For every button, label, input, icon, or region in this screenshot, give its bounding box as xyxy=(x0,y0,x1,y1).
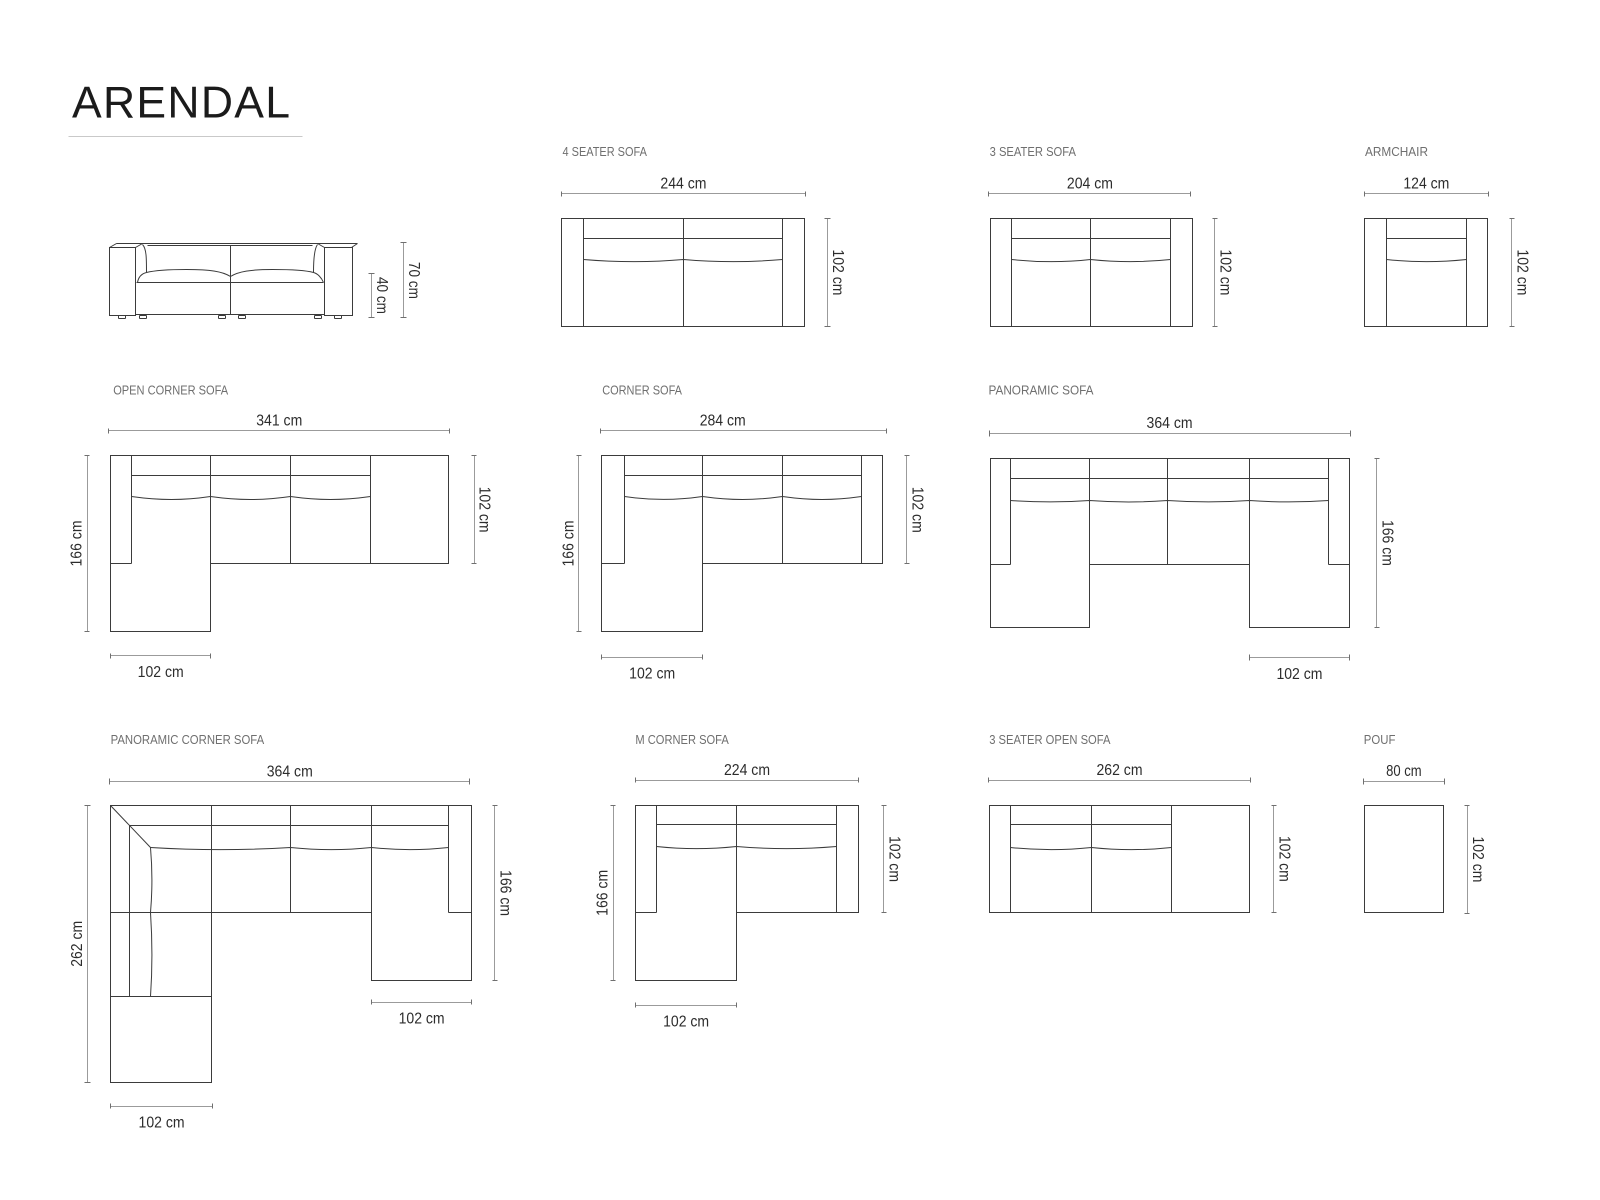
svg-text:70 cm: 70 cm xyxy=(405,262,422,299)
svg-text:166 cm: 166 cm xyxy=(1379,520,1396,566)
svg-text:284 cm: 284 cm xyxy=(700,413,746,430)
svg-text:364 cm: 364 cm xyxy=(1147,415,1193,432)
svg-text:244 cm: 244 cm xyxy=(660,176,706,193)
svg-text:102 cm: 102 cm xyxy=(829,249,846,295)
svg-text:166 cm: 166 cm xyxy=(560,521,577,567)
svg-text:102 cm: 102 cm xyxy=(629,666,675,683)
svg-text:102 cm: 102 cm xyxy=(138,664,184,681)
svg-text:204 cm: 204 cm xyxy=(1067,176,1113,193)
svg-text:OPEN CORNER SOFA: OPEN CORNER SOFA xyxy=(113,382,228,397)
svg-text:4 SEATER SOFA: 4 SEATER SOFA xyxy=(563,144,648,159)
svg-text:ARMCHAIR: ARMCHAIR xyxy=(1365,144,1428,159)
svg-text:166 cm: 166 cm xyxy=(497,870,514,916)
svg-text:3 SEATER SOFA: 3 SEATER SOFA xyxy=(990,144,1077,159)
svg-text:124 cm: 124 cm xyxy=(1403,176,1449,193)
svg-text:40 cm: 40 cm xyxy=(373,277,390,314)
svg-text:262 cm: 262 cm xyxy=(1097,762,1143,779)
svg-text:80 cm: 80 cm xyxy=(1386,763,1422,780)
svg-text:102 cm: 102 cm xyxy=(399,1011,445,1028)
svg-text:3 SEATER OPEN SOFA: 3 SEATER OPEN SOFA xyxy=(989,732,1111,747)
svg-text:341 cm: 341 cm xyxy=(256,412,302,429)
svg-text:102 cm: 102 cm xyxy=(476,487,493,533)
svg-text:102 cm: 102 cm xyxy=(1217,249,1234,295)
svg-text:102 cm: 102 cm xyxy=(1276,666,1322,683)
svg-text:166 cm: 166 cm xyxy=(69,521,86,567)
svg-text:ARENDAL: ARENDAL xyxy=(72,78,290,127)
svg-text:102 cm: 102 cm xyxy=(139,1115,185,1132)
svg-text:262 cm: 262 cm xyxy=(69,921,86,967)
svg-text:POUF: POUF xyxy=(1364,732,1396,747)
svg-text:102 cm: 102 cm xyxy=(1513,249,1530,295)
svg-text:102 cm: 102 cm xyxy=(886,836,903,882)
svg-text:PANORAMIC SOFA: PANORAMIC SOFA xyxy=(989,382,1094,397)
svg-text:102 cm: 102 cm xyxy=(909,487,926,533)
svg-text:102 cm: 102 cm xyxy=(1275,836,1292,882)
svg-text:M CORNER SOFA: M CORNER SOFA xyxy=(635,732,729,747)
svg-text:224 cm: 224 cm xyxy=(724,762,770,779)
svg-text:166 cm: 166 cm xyxy=(595,870,612,916)
svg-text:102 cm: 102 cm xyxy=(1469,836,1486,882)
svg-text:CORNER SOFA: CORNER SOFA xyxy=(602,382,682,397)
svg-text:PANORAMIC CORNER SOFA: PANORAMIC CORNER SOFA xyxy=(111,732,265,747)
svg-text:364 cm: 364 cm xyxy=(267,763,313,780)
svg-text:102 cm: 102 cm xyxy=(663,1013,709,1030)
